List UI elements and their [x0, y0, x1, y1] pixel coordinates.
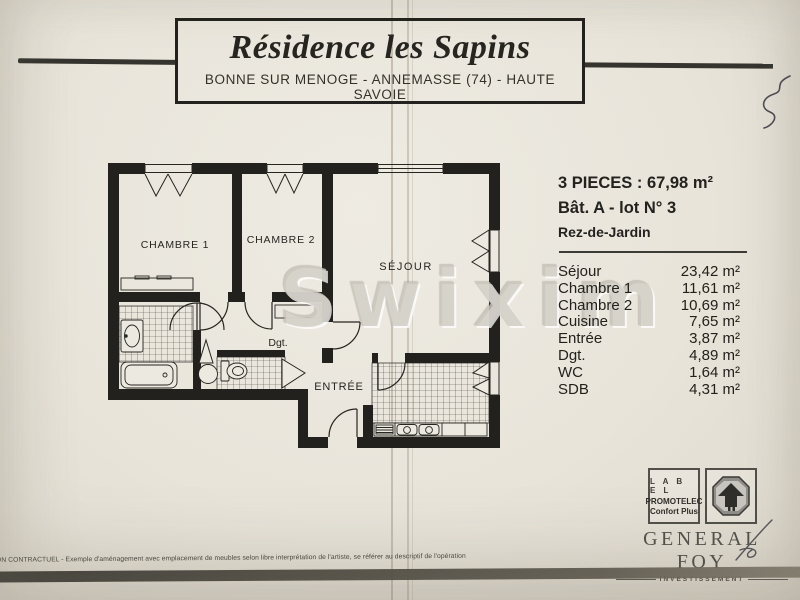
room-name: WC — [558, 365, 583, 382]
room-name: Cuisine — [558, 314, 608, 331]
table-row: Séjour23,42 m² — [558, 264, 740, 281]
lot-number: Bât. A - lot N° 3 — [558, 199, 748, 218]
page-title: Résidence les Sapins — [178, 29, 582, 67]
pen-signature — [720, 516, 780, 564]
door-entrance — [329, 409, 357, 437]
promotelec-text-box: L A B E L PROMOTELEC Confort Plus — [648, 468, 700, 524]
room-areas-table: Séjour23,42 m² Chambre 111,61 m² Chambre… — [558, 264, 740, 398]
window-sejour-top — [378, 165, 443, 173]
scanned-floor-plan-page: Résidence les Sapins BONNE SUR MENOGE - … — [0, 0, 800, 600]
room-area: 4,31 m² — [689, 382, 740, 399]
window-chambre2 — [267, 165, 303, 194]
kitchen-counter — [374, 423, 487, 436]
cooktop-hatch — [376, 425, 393, 434]
logo-rule — [748, 579, 788, 580]
floor-plan-drawing: CHAMBRE 1 CHAMBRE 2 SÉJOUR Dgt. ENTRÉE — [95, 150, 515, 465]
room-name: Chambre 1 — [558, 281, 632, 298]
room-area: 1,64 m² — [689, 365, 740, 382]
table-row: WC1,64 m² — [558, 365, 740, 382]
room-name: Entrée — [558, 331, 602, 348]
plan-label-chambre2: CHAMBRE 2 — [247, 234, 315, 246]
promotelec-brand: PROMOTELEC — [646, 496, 703, 506]
lot-level: Rez-de-Jardin — [558, 224, 748, 240]
table-row: SDB4,31 m² — [558, 382, 740, 399]
door-sejour — [333, 322, 360, 349]
promotelec-house-icon — [711, 475, 751, 517]
closet-corridor — [275, 305, 320, 318]
door-chambre2 — [245, 302, 272, 329]
room-area: 7,65 m² — [689, 314, 740, 331]
info-divider — [559, 251, 747, 253]
tiled-floor-kitchen — [372, 363, 489, 423]
bathtub — [121, 362, 177, 388]
title-rule-left — [18, 58, 175, 65]
plan-label-chambre1: CHAMBRE 1 — [141, 239, 209, 251]
title-box: Résidence les Sapins BONNE SUR MENOGE - … — [175, 18, 585, 104]
plan-label-entree: ENTRÉE — [314, 380, 363, 393]
room-name: Dgt. — [558, 348, 586, 365]
room-area: 11,61 m² — [682, 281, 740, 298]
table-row: Entrée3,87 m² — [558, 331, 740, 348]
vanity-sink — [121, 320, 143, 352]
room-name: Séjour — [558, 264, 601, 281]
room-area: 3,87 m² — [689, 331, 740, 348]
page-subtitle: BONNE SUR MENOGE - ANNEMASSE (74) - HAUT… — [178, 72, 582, 102]
room-area: 10,69 m² — [681, 298, 740, 315]
title-rule-right — [585, 62, 773, 68]
table-row: Chambre 210,69 m² — [558, 298, 740, 315]
plan-label-sejour: SÉJOUR — [379, 260, 433, 273]
round-basin — [199, 365, 218, 384]
room-name: Chambre 2 — [558, 298, 632, 315]
lot-type: 3 PIECES : 67,98 m² — [558, 174, 748, 193]
table-row: Dgt.4,89 m² — [558, 348, 740, 365]
lot-info-panel: 3 PIECES : 67,98 m² Bât. A - lot N° 3 Re… — [558, 174, 748, 398]
door-leaf-wc — [282, 359, 305, 388]
promotelec-grade: Confort Plus — [650, 507, 698, 516]
room-area: 4,89 m² — [689, 348, 740, 365]
plan-label-dgt: Dgt. — [268, 337, 287, 349]
window-sejour-right — [472, 230, 499, 272]
window-chambre1 — [145, 165, 192, 197]
room-area: 23,42 m² — [681, 264, 740, 281]
table-row: Cuisine7,65 m² — [558, 314, 740, 331]
door-leaf-lobby — [199, 340, 213, 363]
disclaimer-text: ON CONTRACTUEL - Exemple d'aménagement a… — [0, 552, 416, 563]
promotelec-label-word: L A B E L — [650, 477, 698, 495]
table-row: Chambre 111,61 m² — [558, 281, 740, 298]
wardrobe-chambre1 — [121, 276, 193, 290]
logo-rule — [616, 579, 656, 580]
room-name: SDB — [558, 382, 589, 399]
handwritten-mark — [752, 72, 800, 134]
